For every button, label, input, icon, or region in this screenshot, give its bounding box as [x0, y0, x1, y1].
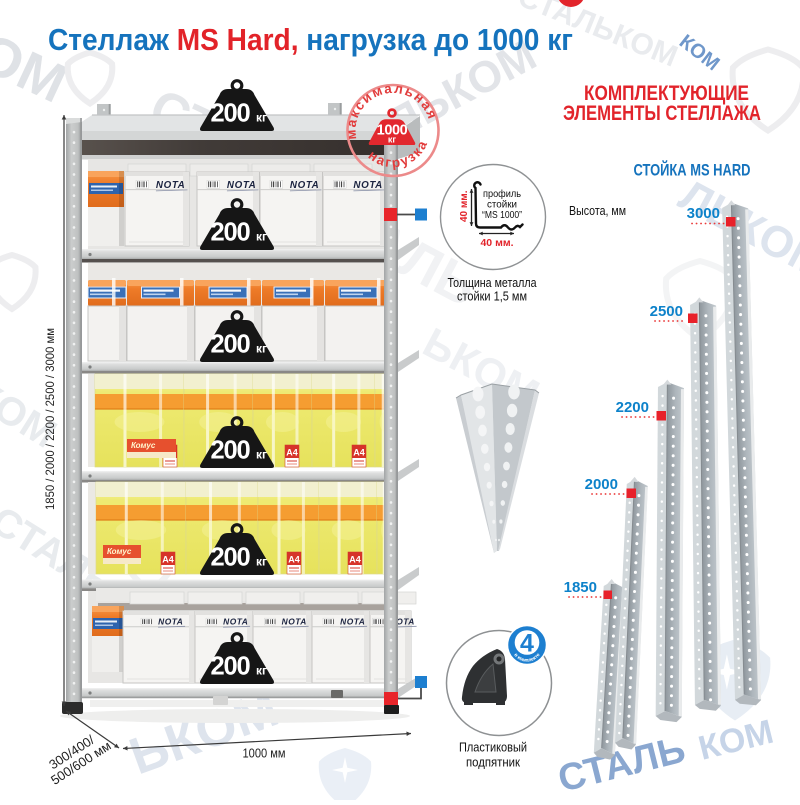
svg-text:200: 200 [211, 544, 251, 572]
svg-text:2500: 2500 [650, 303, 683, 320]
svg-text:NOTA: NOTA [227, 180, 256, 191]
svg-text:NOTA: NOTA [156, 180, 185, 191]
svg-text:КОМ: КОМ [675, 31, 724, 76]
svg-text:A4: A4 [162, 555, 174, 565]
svg-text:Комус: Комус [131, 441, 156, 450]
svg-text:1850: 1850 [564, 579, 597, 596]
svg-text:A4: A4 [288, 555, 300, 565]
svg-text:стойки 1,5 мм: стойки 1,5 мм [457, 289, 527, 304]
svg-text:1000 мм: 1000 мм [243, 747, 286, 761]
svg-text:3000: 3000 [687, 205, 720, 222]
svg-text:200: 200 [211, 331, 251, 359]
svg-text:200: 200 [211, 437, 251, 465]
svg-text:NOTA: NOTA [282, 617, 307, 627]
svg-text:A4: A4 [349, 555, 361, 565]
svg-text:Высота, мм: Высота, мм [569, 203, 626, 218]
svg-text:1850 / 2000 / 2200 / 2500 / 30: 1850 / 2000 / 2200 / 2500 / 3000 мм [43, 328, 57, 510]
svg-text:200: 200 [211, 653, 251, 681]
svg-text:2200: 2200 [616, 399, 649, 416]
svg-text:NOTA: NOTA [290, 180, 319, 191]
svg-text:Стеллаж MS Hard, нагрузка до 1: Стеллаж MS Hard, нагрузка до 1000 кг [48, 23, 573, 57]
svg-text:кг: кг [256, 555, 267, 569]
svg-text:2000: 2000 [585, 476, 618, 493]
svg-text:КОМ: КОМ [695, 713, 777, 768]
svg-text:кг: кг [256, 448, 267, 462]
svg-text:кг: кг [256, 664, 267, 678]
svg-text:ЭЛЕМЕНТЫ СТЕЛЛАЖА: ЭЛЕМЕНТЫ СТЕЛЛАЖА [563, 101, 761, 125]
svg-text:A4: A4 [286, 448, 298, 458]
svg-text:кг: кг [256, 230, 267, 244]
svg-text:СТОЙКА MS HARD: СТОЙКА MS HARD [634, 161, 751, 180]
svg-text:NOTA: NOTA [158, 617, 183, 627]
svg-text:Комус: Комус [107, 547, 132, 556]
svg-text:A4: A4 [353, 448, 365, 458]
svg-text:NOTA: NOTA [353, 180, 382, 191]
svg-text:профиль: профиль [483, 188, 521, 200]
svg-text:стойки: стойки [487, 200, 517, 211]
svg-text:NOTA: NOTA [340, 617, 365, 627]
svg-text:40 мм.: 40 мм. [480, 237, 513, 249]
svg-text:200: 200 [211, 219, 251, 247]
svg-text:кг: кг [388, 135, 397, 145]
svg-text:40 мм.: 40 мм. [459, 190, 470, 222]
svg-text:“MS 1000”: “MS 1000” [482, 210, 522, 221]
svg-text:NOTA: NOTA [223, 617, 248, 627]
svg-text:кг: кг [256, 342, 267, 356]
svg-text:подпятник: подпятник [466, 756, 520, 770]
svg-text:Пластиковый: Пластиковый [459, 741, 527, 755]
svg-text:кг: кг [256, 111, 267, 125]
svg-text:200: 200 [211, 100, 251, 128]
